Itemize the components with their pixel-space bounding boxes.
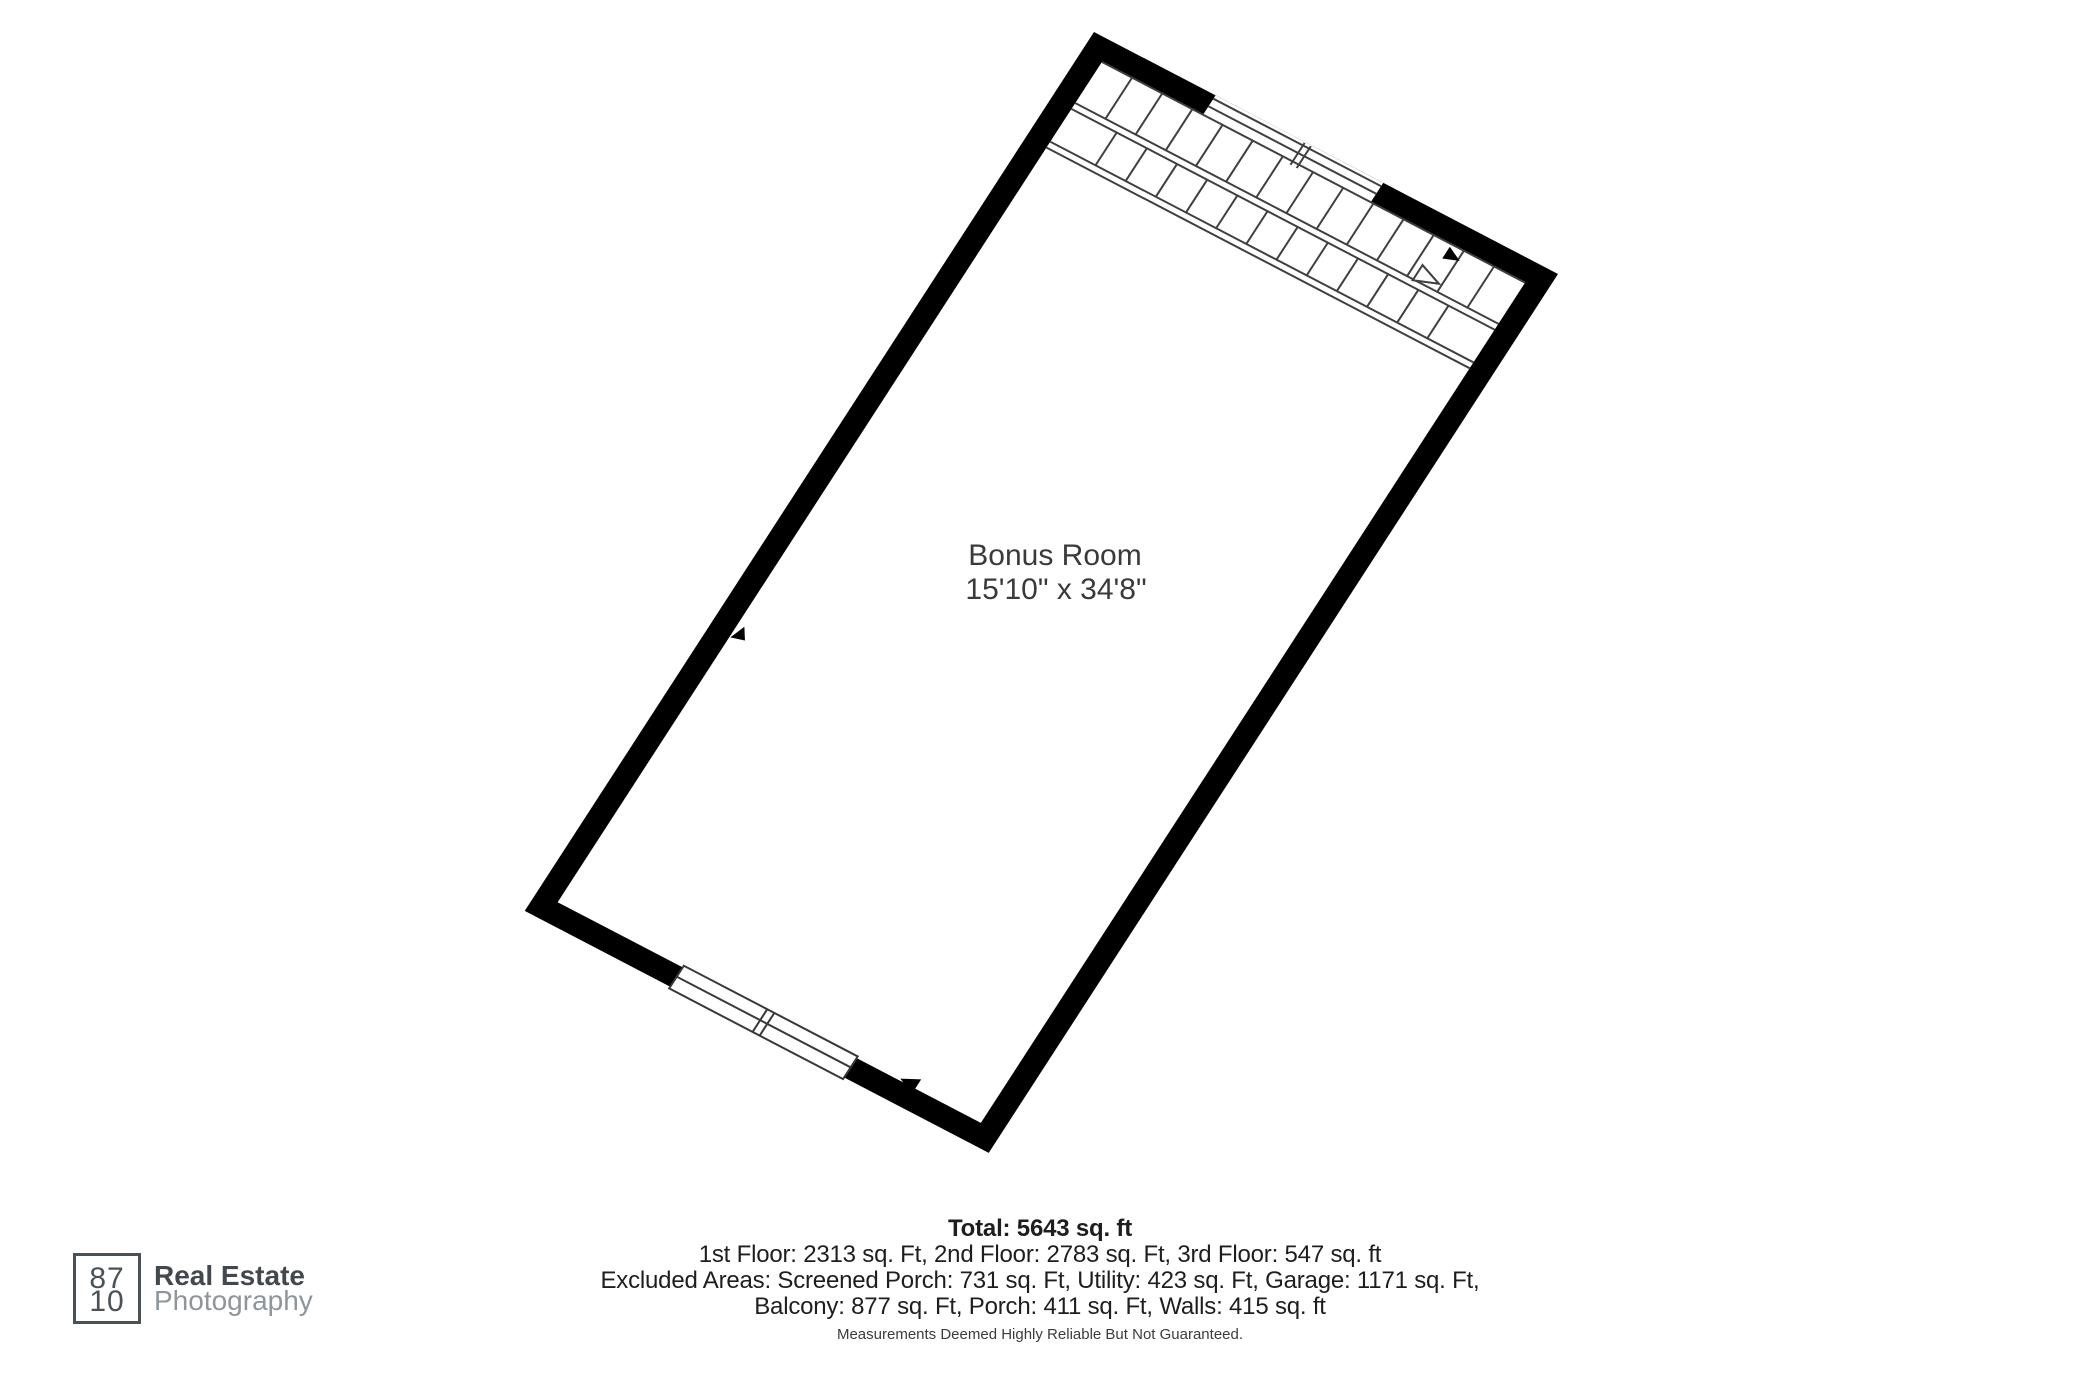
company-logo: 87 10 Real Estate Photography xyxy=(73,1253,313,1324)
logo-brand-line2: Photography xyxy=(154,1288,313,1314)
total-area-line: Total: 5643 sq. ft xyxy=(0,1216,2080,1242)
floor-plan-svg: Bonus Room 15'10" x 34'8" xyxy=(0,0,2080,1386)
logo-brand-text: Real Estate Photography xyxy=(154,1264,313,1314)
logo-brand-line1: Real Estate xyxy=(154,1264,313,1288)
logo-number-bottom: 10 xyxy=(89,1290,124,1313)
room-dimensions-label: 15'10" x 34'8" xyxy=(965,573,1146,606)
room-name-label: Bonus Room xyxy=(968,539,1141,572)
floor-plan-page: Bonus Room 15'10" x 34'8" Total: 5643 sq… xyxy=(0,0,2080,1386)
logo-number-box: 87 10 xyxy=(73,1253,141,1324)
disclaimer-text: Measurements Deemed Highly Reliable But … xyxy=(0,1327,2080,1343)
